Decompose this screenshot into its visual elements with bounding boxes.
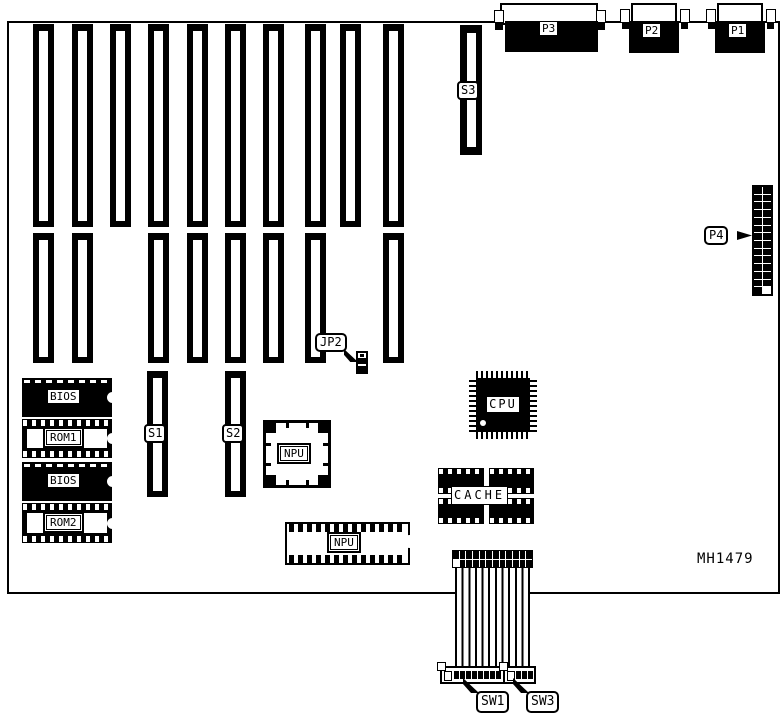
npu-dip-pins-top [289, 524, 406, 532]
npu-dip-pins-bottom [289, 555, 406, 563]
pin-cell [754, 249, 762, 256]
pin-cell [754, 195, 762, 202]
pin-cell [754, 187, 762, 194]
cpu-chip: CPU [469, 371, 537, 439]
pin-cell [453, 560, 459, 568]
cpu-label: CPU [487, 397, 519, 412]
pin-cell [763, 210, 771, 217]
expansion-slot [305, 24, 326, 227]
slot-channel [154, 31, 163, 221]
bios1-notch [107, 392, 118, 403]
slot-channel [78, 240, 87, 357]
chip-rom1: ROM1 [22, 419, 112, 458]
rom1-pins-top [23, 420, 111, 426]
s1-label: S1 [144, 424, 166, 443]
npu-socket-tick [266, 463, 271, 466]
pin-cell [754, 210, 762, 217]
switch-ribbon [455, 566, 530, 668]
sw1-switch-squares [454, 671, 501, 679]
slot-channel [193, 31, 202, 221]
motherboard-diagram: P3 P2 P1 S3 P4 JP2 BIOS [0, 0, 784, 716]
npu-socket-tick [323, 463, 328, 466]
npu-dip-label: NPU [327, 532, 361, 553]
jp2-cell-gap [358, 364, 366, 366]
cpu-pin1-dot [480, 420, 486, 426]
slot-channel [39, 240, 48, 357]
npu-socket-tick [306, 480, 309, 485]
pin-cell [754, 256, 762, 263]
pin-cell [763, 195, 771, 202]
slot-channel [154, 240, 163, 357]
sw1-corner-flag [437, 662, 446, 671]
bios2-notch [107, 476, 118, 487]
pin-cell [486, 551, 492, 559]
pin-cell [526, 551, 532, 559]
switch-bar [440, 666, 536, 684]
pin-cell [763, 264, 771, 271]
pin-cell [763, 249, 771, 256]
expansion-slot [72, 233, 93, 363]
slot-channel [116, 31, 125, 221]
rom1-label: ROM1 [43, 427, 84, 448]
npu-socket: NPU [263, 420, 331, 488]
cpu-body: CPU [476, 378, 530, 432]
slot-channel [193, 240, 202, 357]
pin-cell [453, 551, 459, 559]
pin-cell [513, 560, 519, 568]
rom2-pins-top [23, 504, 111, 510]
pin-cell [513, 551, 519, 559]
slot-channel [39, 31, 48, 221]
cache-pins [490, 469, 533, 474]
slot-channel [78, 31, 87, 221]
pin-cell [493, 551, 499, 559]
sw3-switch-squares [516, 671, 533, 679]
connector-p2: P2 [618, 1, 690, 57]
pin-cell [460, 560, 466, 568]
pin-cell [754, 218, 762, 225]
jp2-pin1-cell [358, 353, 366, 358]
pin-cell [763, 280, 771, 287]
npu-socket-tick [306, 423, 309, 428]
slot-channel [346, 31, 355, 221]
pin-cell [763, 187, 771, 194]
p3-post-right [597, 22, 605, 30]
bios2-label: BIOS [47, 473, 80, 488]
cache-bank: CACHE [438, 468, 534, 524]
pin-cell [520, 560, 526, 568]
slot-channel [231, 31, 240, 221]
expansion-slot [187, 24, 208, 227]
pin-cell [520, 551, 526, 559]
pin-cell [763, 218, 771, 225]
jp2-pin1-dot [360, 354, 364, 357]
npu-socket-corner-br [318, 475, 328, 485]
expansion-slot [187, 233, 208, 363]
expansion-slot [340, 24, 361, 227]
p2-screw-right [680, 9, 690, 23]
slot-channel [389, 240, 398, 357]
cpu-pins-right [530, 378, 537, 432]
expansion-slot [383, 233, 404, 363]
pin-cell [754, 226, 762, 233]
pin-cell [473, 560, 479, 568]
slot-channel [311, 31, 320, 221]
expansion-slot [148, 24, 169, 227]
cpu-pins-bottom [476, 432, 530, 439]
bios1-dash-line [24, 380, 110, 383]
pin-cell [763, 272, 771, 279]
expansion-slot [263, 24, 284, 227]
slot-channel [389, 31, 398, 221]
pin-cell [754, 264, 762, 271]
pin-cell [480, 551, 486, 559]
jp2-callout: JP2 [315, 333, 347, 352]
connector-p1: P1 [704, 1, 776, 57]
expansion-slot [33, 233, 54, 363]
pin-cell [493, 560, 499, 568]
p2-label: P2 [642, 23, 661, 38]
p3-label: P3 [539, 21, 558, 36]
sw3-corner-flag [499, 662, 508, 671]
connector-p3: P3 [492, 1, 608, 56]
npu-dip-notch [403, 535, 416, 548]
pin-cell [480, 560, 486, 568]
rom2-label: ROM2 [43, 512, 84, 533]
pin-cell [763, 226, 771, 233]
npu-socket-tick [286, 480, 289, 485]
pin-cell [754, 233, 762, 240]
cache-label: CACHE [451, 486, 508, 505]
chip-bios1: BIOS [22, 378, 112, 417]
pin-cell [473, 551, 479, 559]
expansion-slot [225, 24, 246, 227]
sw3-callout: SW3 [526, 691, 559, 713]
pin-cell [763, 241, 771, 248]
p1-post-right [767, 22, 774, 29]
expansion-slot [72, 24, 93, 227]
cache-pins [439, 518, 483, 523]
pin-cell [754, 280, 762, 287]
p2-post-right [681, 22, 688, 29]
cache-pins [439, 469, 483, 474]
npu-socket-tick [323, 443, 328, 446]
cpu-pins-left [469, 378, 476, 432]
expansion-slot [148, 233, 169, 363]
rom2-notch [107, 518, 118, 529]
rom1-notch [107, 433, 118, 444]
bios2-dash-line [24, 464, 110, 467]
pin-cell [500, 551, 506, 559]
pin-cell [466, 560, 472, 568]
p4-header [752, 185, 773, 296]
pin-cell [763, 256, 771, 263]
rom1-pins-bottom [23, 451, 111, 457]
expansion-slot [33, 24, 54, 227]
npu-socket-corner-bl [266, 475, 276, 485]
pin-cell [506, 551, 512, 559]
pin-cell [506, 560, 512, 568]
p3-post-left [495, 22, 503, 30]
sw1-pin1-square [444, 671, 452, 681]
slot-channel [231, 240, 240, 357]
bios1-label: BIOS [47, 389, 80, 404]
expansion-slot [263, 233, 284, 363]
cpu-pins-top [476, 371, 530, 378]
expansion-slot [383, 24, 404, 227]
s3-label: S3 [457, 81, 479, 100]
pin-cell [754, 287, 762, 294]
sw1-callout: SW1 [476, 691, 509, 713]
pin-cell [754, 241, 762, 248]
p4-callout: P4 [704, 226, 728, 245]
expansion-slot [225, 233, 246, 363]
expansion-slot [110, 24, 131, 227]
p2-post-left [622, 22, 629, 29]
switch-header [452, 550, 533, 568]
pin-cell [763, 202, 771, 209]
rom2-pins-bottom [23, 536, 111, 542]
pin-cell [500, 560, 506, 568]
pin-cell [754, 202, 762, 209]
slot-channel [269, 31, 278, 221]
pin-cell [763, 233, 771, 240]
s2-label: S2 [222, 424, 244, 443]
npu-socket-label: NPU [277, 443, 311, 464]
jp2-jumper [356, 351, 368, 374]
pin-cell [763, 287, 771, 294]
chip-bios2: BIOS [22, 462, 112, 501]
pin-cell [460, 551, 466, 559]
part-number: MH1479 [697, 551, 754, 567]
pin-cell [486, 560, 492, 568]
npu-socket-corner-tl [266, 423, 276, 433]
npu-socket-tick [286, 423, 289, 428]
slot-channel [269, 240, 278, 357]
pin-cell [466, 551, 472, 559]
npu-dip: NPU [285, 522, 410, 565]
cache-pins [490, 518, 533, 523]
npu-socket-corner-tr [318, 423, 328, 433]
p1-post-left [708, 22, 715, 29]
pin-cell [526, 560, 532, 568]
chip-rom2: ROM2 [22, 503, 112, 543]
pin-cell [754, 272, 762, 279]
p1-label: P1 [728, 23, 747, 38]
p1-screw-right [766, 9, 776, 23]
npu-socket-tick [266, 443, 271, 446]
